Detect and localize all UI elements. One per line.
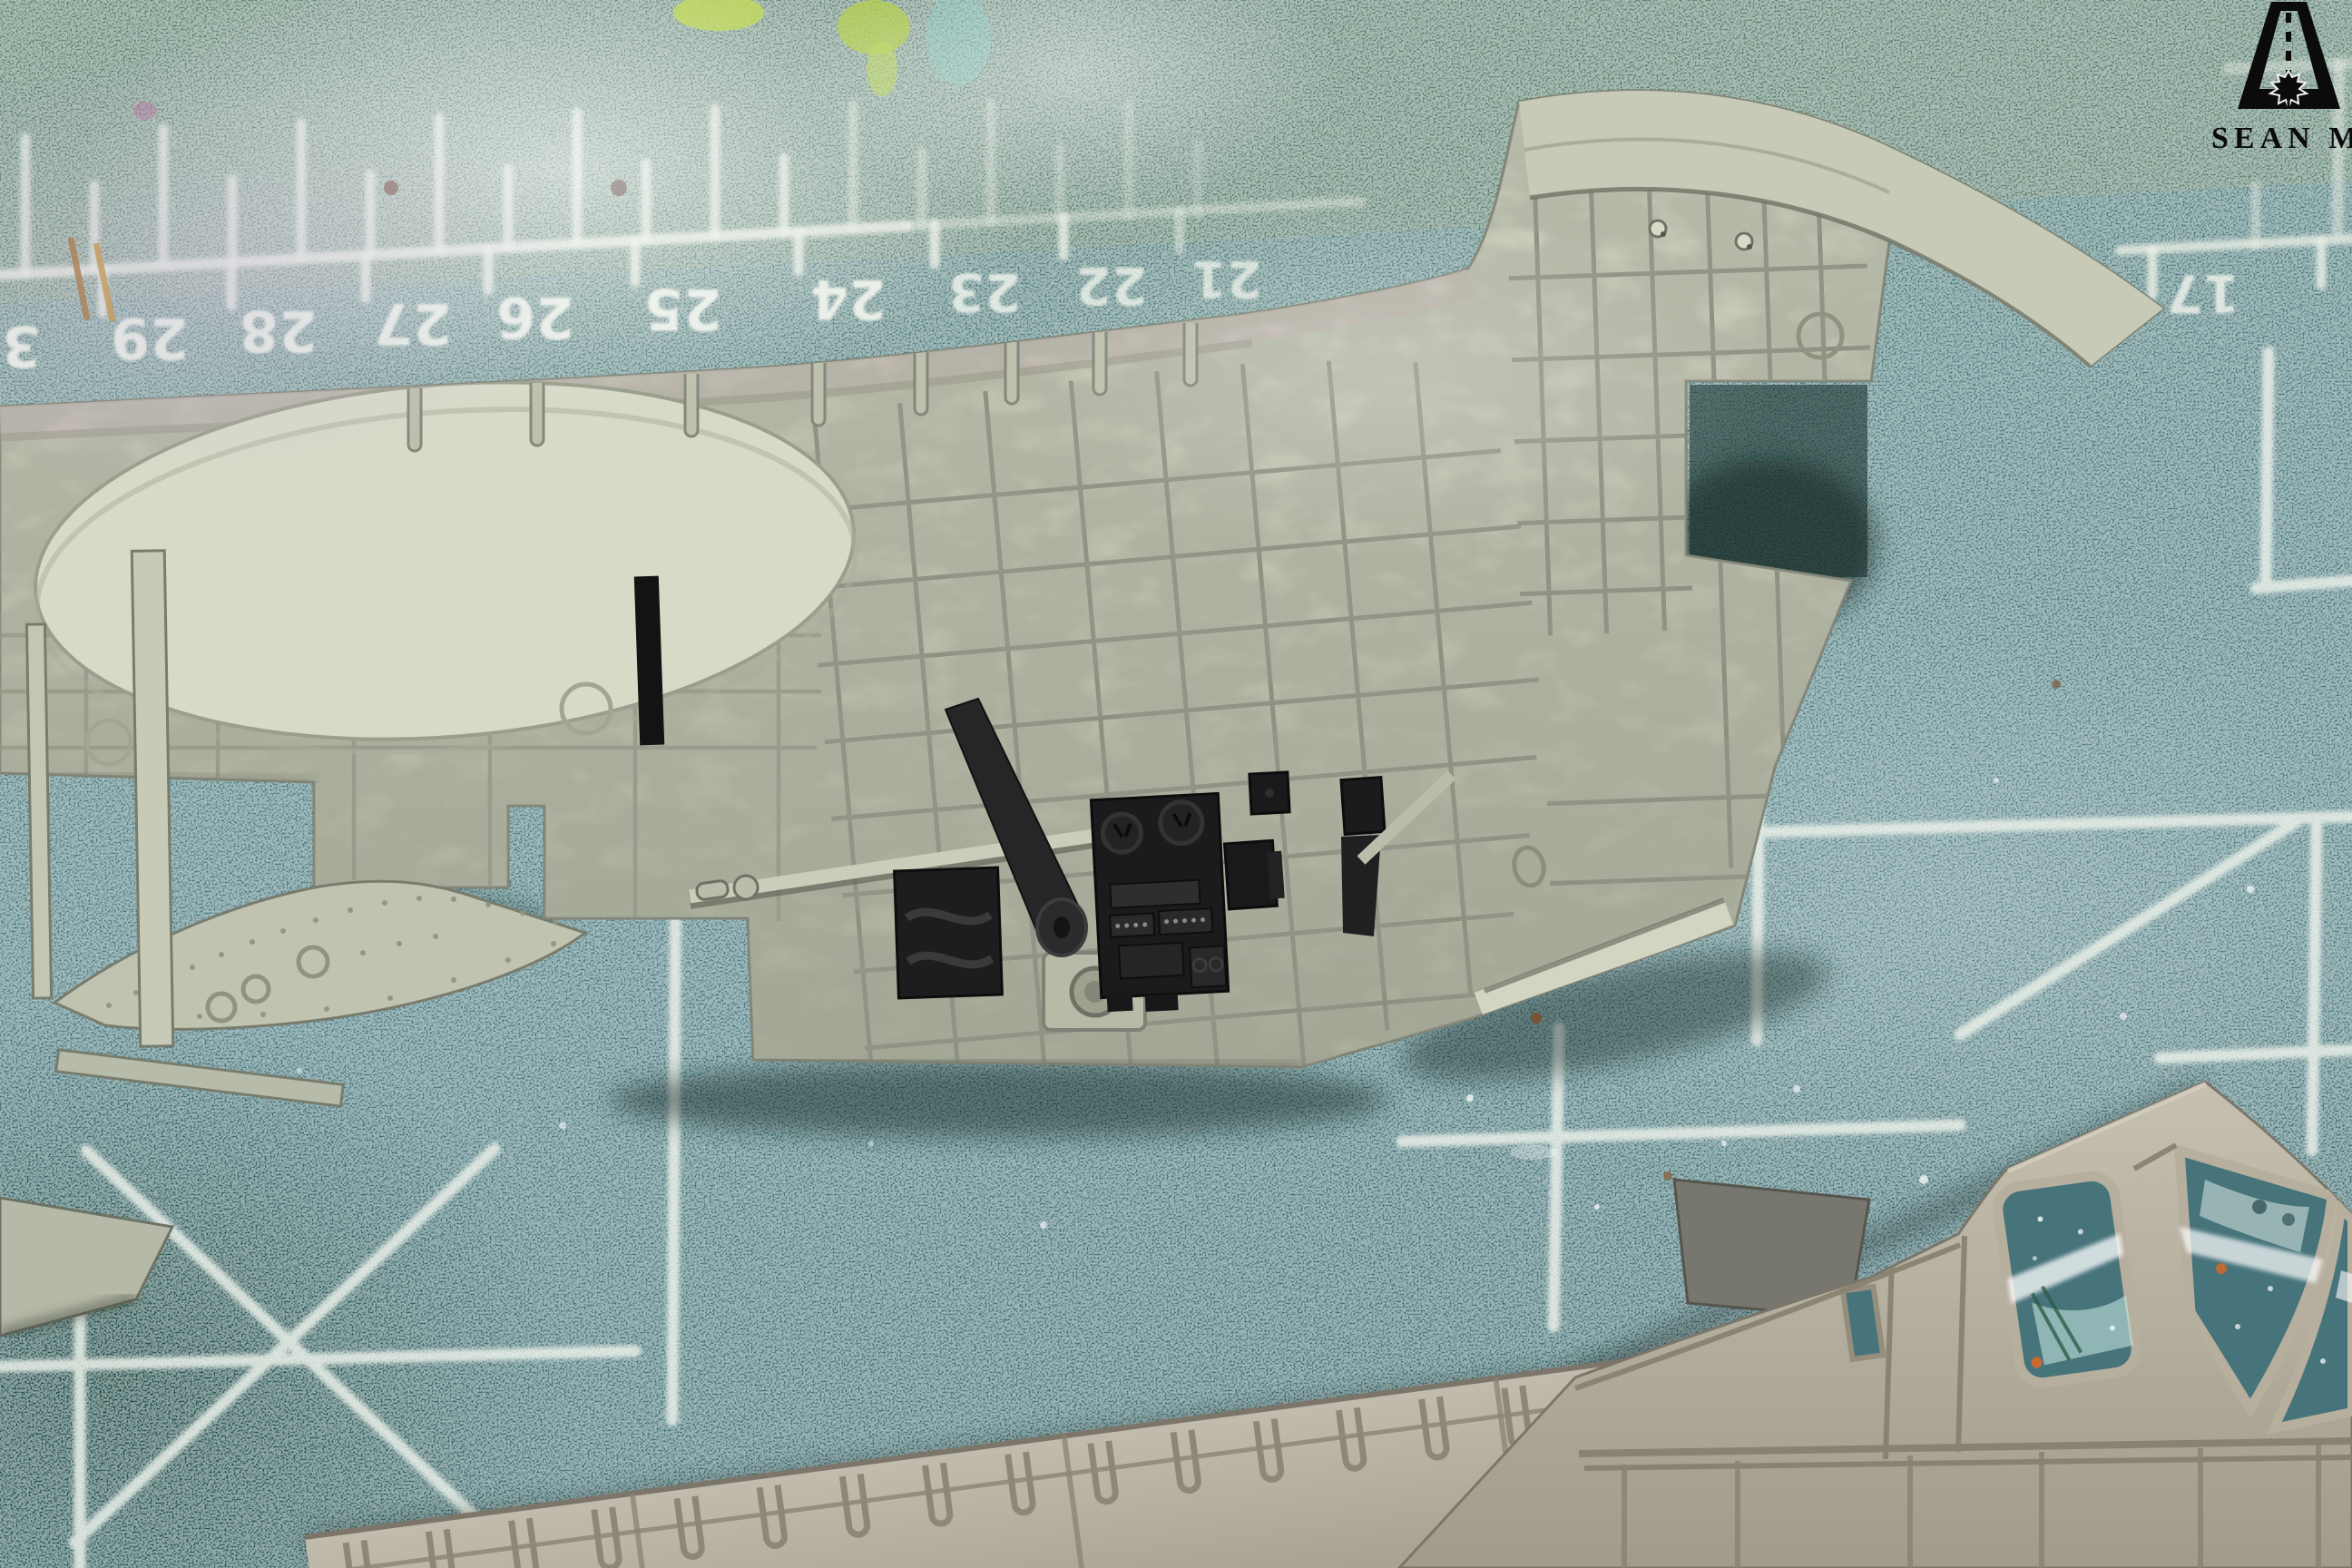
small-rect-cutout (1843, 1287, 1883, 1359)
ruler-number-26: 26 (496, 284, 574, 350)
ruler-number-21: 21 (1191, 249, 1262, 308)
ruler-number-17: 17 (2167, 262, 2240, 324)
seat-box (895, 867, 1003, 998)
instrument-panel (1091, 793, 1229, 1014)
ruler-number-24: 24 (810, 267, 887, 330)
sub-panel-1 (1110, 880, 1200, 908)
watermark-artist-name: SEAN MARTIN (2211, 122, 2352, 155)
ruler-number-30: 30 (0, 313, 41, 379)
side-window (1994, 1173, 2139, 1386)
ruler-number-25: 25 (644, 276, 722, 342)
ruler-number-22: 22 (1075, 255, 1147, 315)
photo-canvas: 30 29 28 27 26 25 24 23 22 21 17 (0, 0, 2352, 1568)
ruler-number-23: 23 (948, 261, 1022, 323)
black-box-top-hole (1265, 789, 1274, 798)
ruler-number-28: 28 (240, 298, 318, 364)
panel-foot-left (1107, 991, 1133, 1012)
panel-foot-right (1145, 994, 1179, 1012)
ruler-number-27: 27 (374, 290, 452, 357)
photo-scene: 30 29 28 27 26 25 24 23 22 21 17 (0, 0, 2352, 1568)
stringer-strip-2 (132, 551, 173, 1047)
sub-panel-4 (1119, 943, 1184, 979)
ruler-number-29: 29 (111, 305, 189, 371)
